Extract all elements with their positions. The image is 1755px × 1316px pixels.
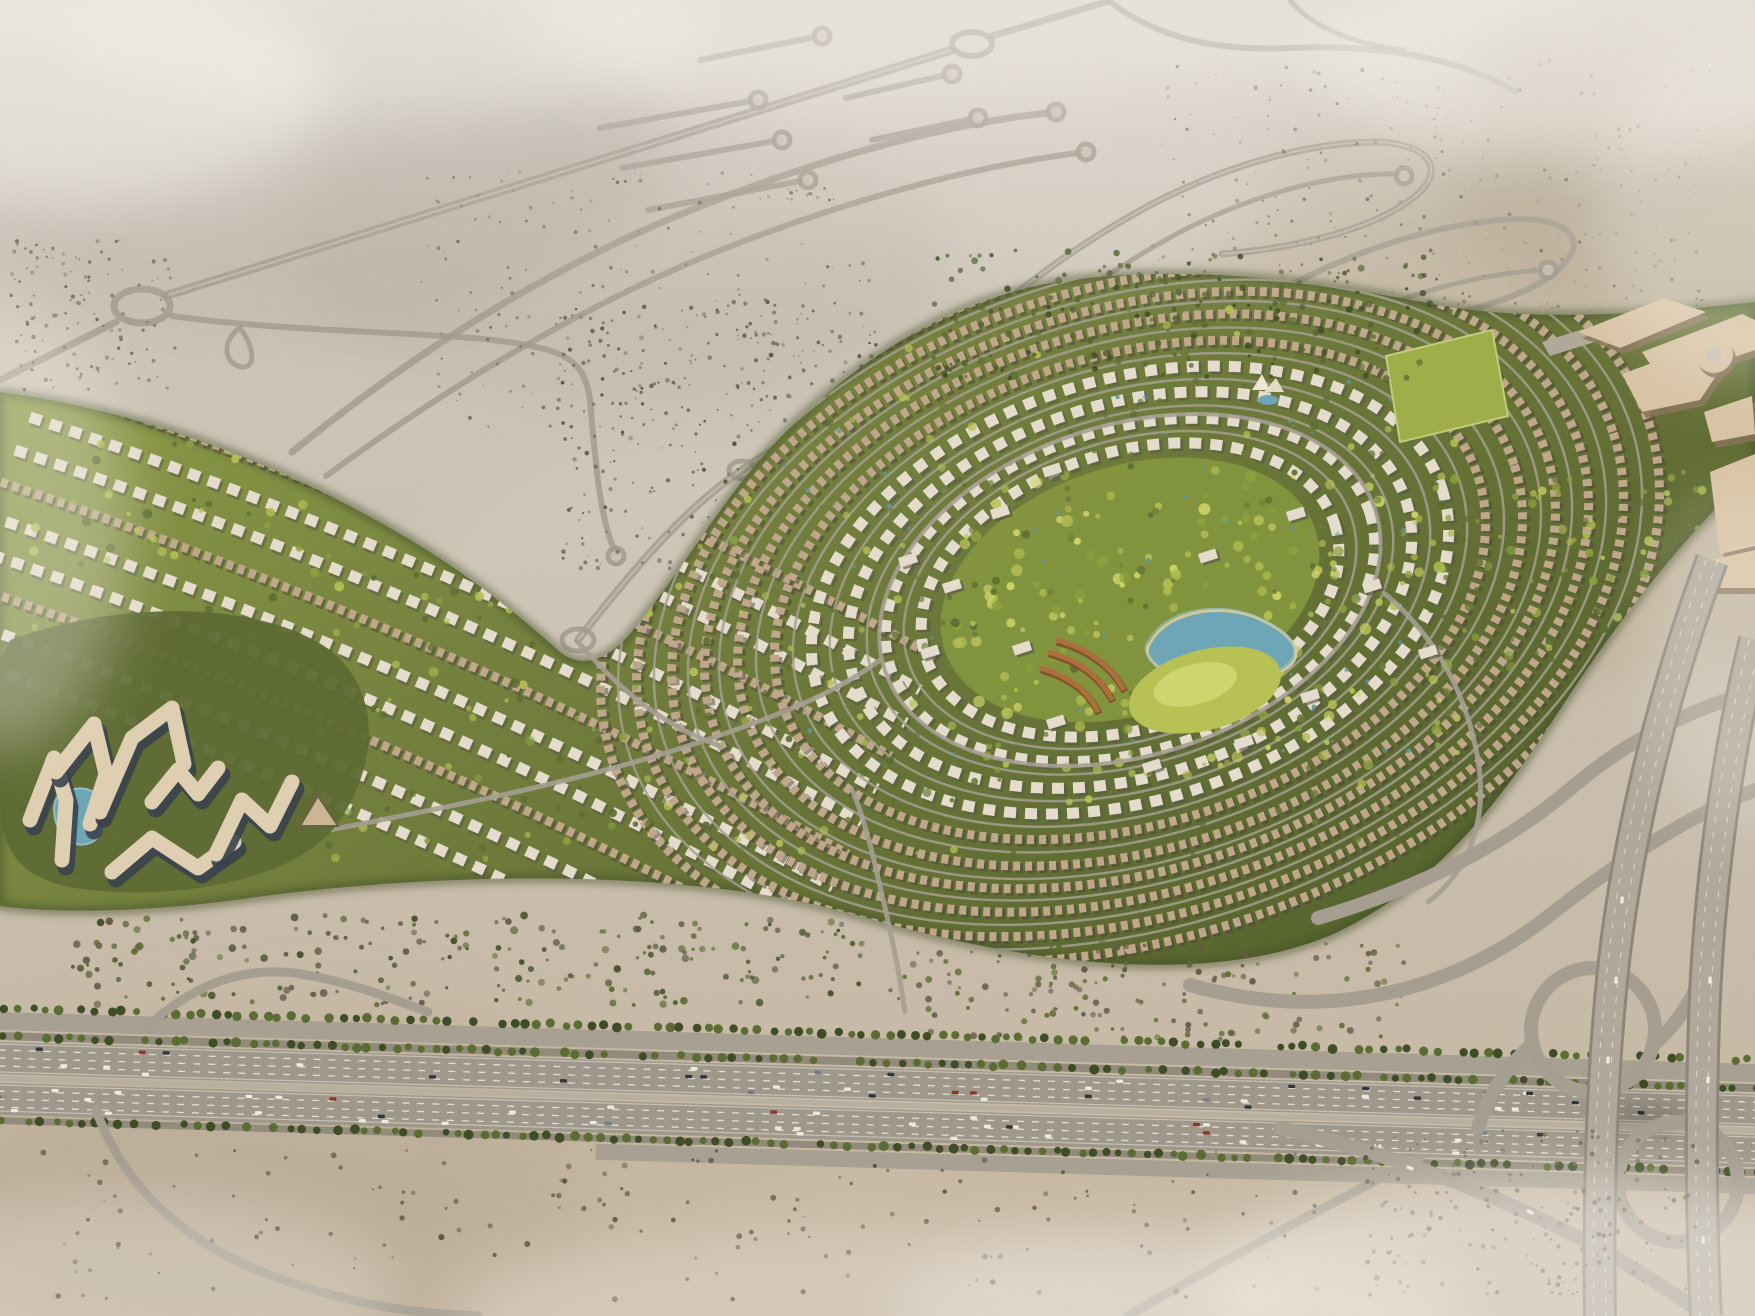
render-canvas: Aerial render of a desert master-planned… <box>0 0 1755 1316</box>
aerial-masterplan-render: Aerial render of a desert master-planned… <box>0 0 1755 1316</box>
top-atmospheric-haze <box>0 0 1755 330</box>
